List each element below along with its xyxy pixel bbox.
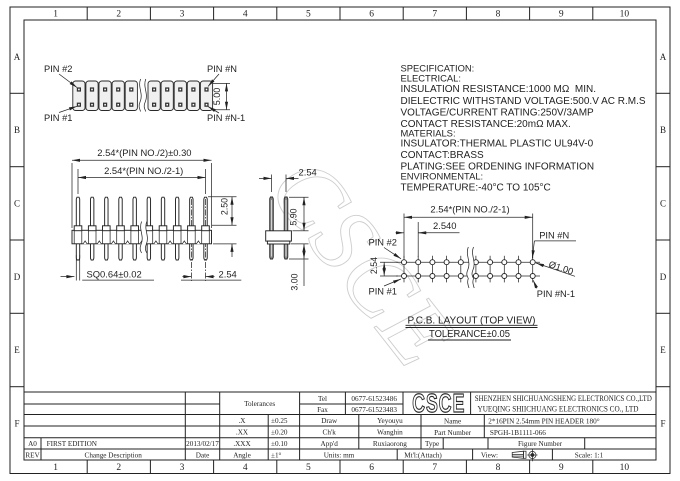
svg-text:DIELECTRIC WITHSTAND VOLTAGE:5: DIELECTRIC WITHSTAND VOLTAGE:500.V AC R.… <box>401 96 646 107</box>
svg-text:3.00: 3.00 <box>290 273 300 290</box>
svg-text:7: 7 <box>432 10 437 20</box>
svg-text:PIN #2: PIN #2 <box>369 238 397 248</box>
svg-text:C: C <box>14 199 20 209</box>
svg-text:±0.20: ±0.20 <box>271 429 288 437</box>
svg-text:VOLTAGE/CURRENT RATING:250V/3A: VOLTAGE/CURRENT RATING:250V/3AMP <box>401 107 595 118</box>
svg-text:PIN #N: PIN #N <box>207 64 237 74</box>
svg-text:Wanghin: Wanghin <box>377 429 403 437</box>
svg-text:8: 8 <box>496 10 501 20</box>
svg-text:PIN #N-1: PIN #N-1 <box>207 113 245 123</box>
svg-text:2*16PIN 2.54mm PIN HEADER 180°: 2*16PIN 2.54mm PIN HEADER 180° <box>488 417 599 425</box>
svg-text:Part Number: Part Number <box>434 429 472 437</box>
svg-text:REV: REV <box>25 451 40 459</box>
svg-text:±0.10: ±0.10 <box>271 440 288 448</box>
svg-text:ELECTRICAL:: ELECTRICAL: <box>401 72 461 83</box>
svg-text:2: 2 <box>116 10 121 20</box>
svg-text:2.54*(PIN NO./2-1): 2.54*(PIN NO./2-1) <box>430 203 509 214</box>
svg-text:2.54*(PIN NO./2)±0.30: 2.54*(PIN NO./2)±0.30 <box>97 147 191 158</box>
svg-text:Units: mm: Units: mm <box>324 451 355 459</box>
svg-text:1: 1 <box>53 10 58 20</box>
svg-text:A: A <box>660 52 667 62</box>
svg-text:.X: .X <box>239 417 247 425</box>
svg-text:CSCE: CSCE <box>412 388 465 417</box>
svg-text:2.54: 2.54 <box>219 269 237 280</box>
svg-text:2.50: 2.50 <box>220 198 230 215</box>
svg-text:Draw: Draw <box>321 417 338 425</box>
svg-text:2: 2 <box>116 463 121 473</box>
svg-text:5.00: 5.00 <box>212 88 222 106</box>
svg-text:2.540: 2.540 <box>433 220 456 231</box>
svg-text:4: 4 <box>243 10 248 20</box>
svg-text:1: 1 <box>53 463 58 473</box>
svg-text:Figure Number: Figure Number <box>518 440 563 448</box>
svg-text:0677-61523483: 0677-61523483 <box>351 406 397 414</box>
svg-text:Date: Date <box>196 451 210 459</box>
svg-text:9: 9 <box>559 10 564 20</box>
svg-text:SQ0.64±0.02: SQ0.64±0.02 <box>87 269 142 280</box>
svg-text:10: 10 <box>620 10 630 20</box>
svg-text:ENVIRONMENTAL:: ENVIRONMENTAL: <box>401 170 484 181</box>
svg-text:Mt'l:(Attach): Mt'l:(Attach) <box>404 451 442 459</box>
svg-text:Change Description: Change Description <box>85 451 143 459</box>
svg-text:Name: Name <box>444 417 461 425</box>
svg-text:PIN #1: PIN #1 <box>369 287 397 297</box>
svg-text:E: E <box>660 345 666 355</box>
svg-text:View:: View: <box>481 451 498 459</box>
svg-text:CONTACT:BRASS: CONTACT:BRASS <box>401 150 484 161</box>
svg-text:App'd: App'd <box>321 440 339 448</box>
svg-text:MATERIALS:: MATERIALS: <box>401 127 456 138</box>
svg-text:7: 7 <box>432 463 437 473</box>
svg-text:5: 5 <box>306 463 311 473</box>
svg-text:INSULATOR:THERMAL PLASTIC UL94: INSULATOR:THERMAL PLASTIC UL94V-0 <box>401 138 594 149</box>
svg-text:4: 4 <box>243 463 248 473</box>
svg-text:B: B <box>660 125 666 135</box>
svg-text:TEMPERATURE:-40°C TO 105°C: TEMPERATURE:-40°C TO 105°C <box>401 183 551 194</box>
svg-text:2013/02/17: 2013/02/17 <box>186 440 219 448</box>
svg-text:8: 8 <box>496 463 501 473</box>
svg-text:Fax: Fax <box>317 406 328 414</box>
svg-text:5.90: 5.90 <box>288 208 298 225</box>
svg-text:2.54: 2.54 <box>369 257 379 274</box>
svg-text:D: D <box>660 272 667 282</box>
svg-text:.XXX: .XXX <box>233 440 251 448</box>
svg-text:Tel: Tel <box>318 395 327 403</box>
svg-text:TOLERANCE±0.05: TOLERANCE±0.05 <box>429 329 510 340</box>
svg-text:A0: A0 <box>28 440 37 448</box>
svg-text:Ruxiaorong: Ruxiaorong <box>373 440 407 448</box>
svg-text:Angle: Angle <box>233 451 251 459</box>
svg-text:F: F <box>660 419 665 429</box>
svg-text:SHENZHEN SHICHUANGSHENG ELECTR: SHENZHEN SHICHUANGSHENG ELECTRONICS CO.,… <box>475 394 652 403</box>
svg-text:.XX: .XX <box>236 429 249 437</box>
svg-text:6: 6 <box>369 463 374 473</box>
svg-text:Tolerances: Tolerances <box>244 400 275 408</box>
svg-text:INSULATION RESISTANCE:1000 MΩ: INSULATION RESISTANCE:1000 MΩ MIN. <box>401 84 596 95</box>
svg-text:YUEQING SHIICHUANG ELECTRONICS: YUEQING SHIICHUANG ELECTRONICS CO., LTD <box>478 405 639 414</box>
svg-text:C: C <box>660 199 666 209</box>
svg-text:2.54*(PIN NO./2-1): 2.54*(PIN NO./2-1) <box>104 165 183 176</box>
svg-text:PIN #N-1: PIN #N-1 <box>537 289 575 299</box>
svg-text:SPGH-1B1111-066: SPGH-1B1111-066 <box>490 429 546 437</box>
svg-text:PIN #1: PIN #1 <box>44 113 72 123</box>
svg-text:PIN #2: PIN #2 <box>44 64 72 74</box>
svg-text:Scale: 1:1: Scale: 1:1 <box>575 451 604 459</box>
svg-text:10: 10 <box>620 463 630 473</box>
svg-text:PIN #N: PIN #N <box>539 230 569 240</box>
svg-text:B: B <box>14 125 20 135</box>
svg-text:Yeyouyu: Yeyouyu <box>377 417 403 425</box>
svg-text:0677-61523486: 0677-61523486 <box>351 395 397 403</box>
svg-text:E: E <box>14 345 20 355</box>
svg-text:6: 6 <box>369 10 374 20</box>
svg-text:5: 5 <box>306 10 311 20</box>
svg-text:±1°: ±1° <box>271 451 282 459</box>
svg-text:±0.25: ±0.25 <box>271 417 288 425</box>
svg-text:A: A <box>14 52 21 62</box>
svg-text:Ch'k: Ch'k <box>323 429 337 437</box>
svg-text:F: F <box>14 419 19 429</box>
svg-text:9: 9 <box>559 463 564 473</box>
svg-text:Type: Type <box>425 440 439 448</box>
svg-text:3: 3 <box>180 463 185 473</box>
svg-text:2.54: 2.54 <box>299 166 317 177</box>
svg-text:3: 3 <box>180 10 185 20</box>
svg-text:D: D <box>14 272 21 282</box>
svg-text:FIRST EDITION: FIRST EDITION <box>47 440 98 448</box>
